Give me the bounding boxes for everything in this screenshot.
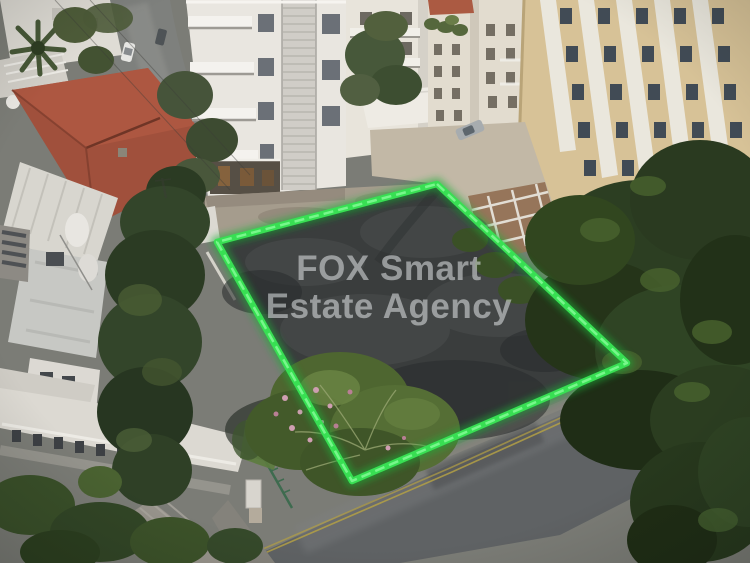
- aerial-photo-canvas: [0, 0, 750, 563]
- aerial-photo: FOX Smart Estate Agency: [0, 0, 750, 563]
- vignette: [0, 0, 750, 563]
